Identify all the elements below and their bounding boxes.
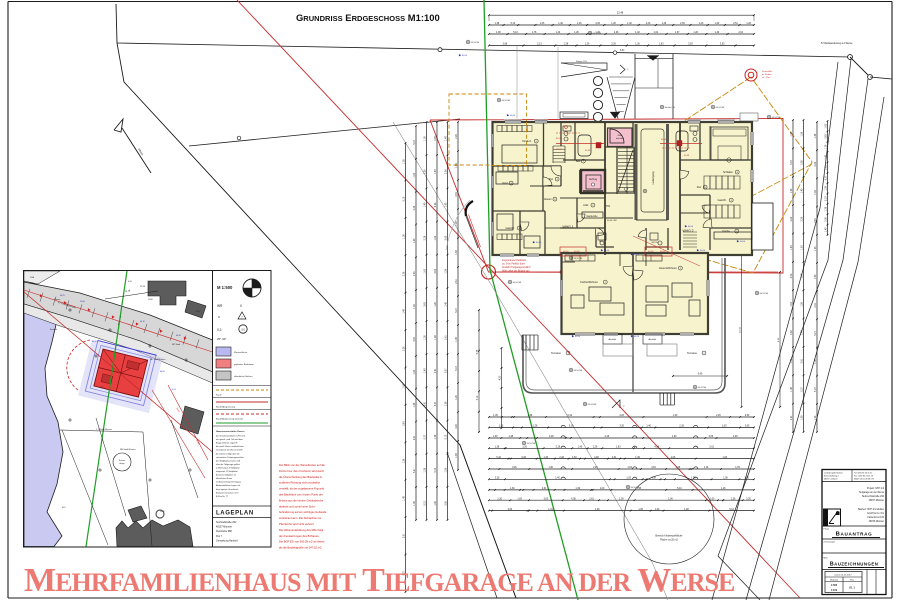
svg-text:verstellt, da der zugelassene: verstellt, da der zugelassene Fixpunkt [279,487,324,491]
svg-text:5,49: 5,49 [698,374,703,376]
svg-text:1,40: 1,40 [456,250,458,255]
svg-text:3,26: 3,26 [414,205,416,210]
svg-text:1,38: 1,38 [684,509,689,511]
svg-text:1,26: 1,26 [791,188,793,193]
svg-text:Terrasse: Terrasse [687,351,698,355]
svg-text:60,50: 60,50 [604,250,610,252]
svg-text:GL 1: GL 1 [849,586,855,590]
svg-text:1,63: 1,63 [722,426,727,428]
svg-text:3,63: 3,63 [544,498,549,500]
svg-text:1,26: 1,26 [815,246,817,251]
svg-text:öffentliche Flächen: öffentliche Flächen [234,375,253,378]
svg-text:1,38: 1,38 [826,185,828,190]
svg-text:60,50: 60,50 [575,336,581,338]
svg-text:Küche: Küche [722,229,730,233]
svg-text:2,61: 2,61 [791,415,793,420]
svg-text:neu geteilt: südl. Teil wird d: neu geteilt: südl. Teil wird dem [216,438,243,441]
svg-text:o: o [218,315,220,319]
svg-text:1,38: 1,38 [533,426,538,428]
svg-text:1,40: 1,40 [791,245,793,250]
svg-text:60,50 NN: 60,50 NN [574,258,583,260]
svg-text:5,27: 5,27 [425,434,427,439]
svg-text:60,50: 60,50 [661,139,667,141]
svg-text:Die Höhenentwicklung des MFH f: Die Höhenentwicklung des MFH folgt [279,528,323,532]
svg-text:Die BGF EG von 360,28 m2 ist: Die BGF EG von 360,28 m2 ist kleiner [279,540,325,544]
svg-text:1,39: 1,39 [635,457,640,459]
svg-text:3,63: 3,63 [745,415,750,417]
svg-text:60,50 NN: 60,50 NN [631,487,640,489]
svg-text:60,50 NN: 60,50 NN [471,42,480,44]
svg-text:1,63: 1,63 [446,202,448,207]
svg-text:3,26: 3,26 [512,467,517,469]
svg-text:Mobil: 0151 143 58 579: Mobil: 0151 143 58 579 [854,479,874,481]
svg-text:60,50: 60,50 [700,250,706,252]
svg-text:2,26: 2,26 [456,134,458,139]
svg-text:Brücke aus die hintere Gebäude: Brücke aus die hintere Gebäudeecke [279,498,324,502]
svg-text:59,80: 59,80 [80,301,85,303]
svg-text:1,40: 1,40 [446,136,448,141]
svg-text:48155 Münster: 48155 Münster [869,520,885,523]
svg-text:je Wohnung 1,5 Stellplätze: je Wohnung 1,5 Stellplätze [215,466,241,469]
svg-text:3,26: 3,26 [826,216,828,221]
svg-text:1,26: 1,26 [577,23,582,25]
svg-text:Plan: Plan [850,580,854,582]
svg-text:60,50: 60,50 [510,115,516,117]
svg-text:Bootsanl.: Bootsanl. [50,328,58,331]
svg-text:Baugrundstück zugeteilt: Baugrundstück zugeteilt [216,442,238,445]
svg-text:987 Stadt: 987 Stadt [172,343,181,346]
svg-text:5,10: 5,10 [791,160,793,165]
svg-text:2,26: 2,26 [791,273,793,278]
svg-text:60,38: 60,38 [684,155,690,157]
svg-text:den Festsetzungen des B-Planes: den Festsetzungen des B-Planes. [279,534,320,538]
svg-text:60,50 NN: 60,50 NN [513,282,522,284]
svg-text:1,26: 1,26 [425,136,427,141]
svg-text:1,26: 1,26 [662,23,667,25]
svg-text:2,26: 2,26 [646,23,651,25]
svg-text:4,38: 4,38 [651,478,656,480]
svg-text:60,50: 60,50 [92,341,97,343]
svg-text:2,13: 2,13 [537,44,542,46]
svg-text:Garderobe: Garderobe [587,215,599,218]
svg-text:1: 1 [511,183,512,185]
svg-text:1,38: 1,38 [456,337,458,342]
svg-text:3,26: 3,26 [619,415,624,417]
svg-text:1,63: 1,63 [627,467,632,469]
svg-text:5,27: 5,27 [815,330,817,335]
svg-text:1,26: 1,26 [802,131,804,136]
svg-text:2,26: 2,26 [414,271,416,276]
svg-text:60,25: 60,25 [60,295,65,297]
svg-text:Der Blick von der Wersebrücke: Der Blick von der Wersebrücke auf die [279,463,325,467]
svg-text:1,38: 1,38 [414,501,416,506]
svg-text:60,50 OKF: 60,50 OKF [607,220,617,222]
svg-text:5,27: 5,27 [456,308,458,313]
svg-text:1,38: 1,38 [528,415,533,417]
svg-text:1,26: 1,26 [611,23,616,25]
svg-text:1,39: 1,39 [619,498,624,500]
svg-text:1,38: 1,38 [495,447,500,449]
svg-text:Projekt: 6/FH mit: Projekt: 6/FH mit [867,487,884,490]
svg-text:3,26: 3,26 [802,160,804,165]
svg-text:1,38: 1,38 [509,436,514,438]
svg-text:1,06: 1,06 [723,478,728,480]
svg-text:Flur: Flur [697,185,702,189]
svg-text:4,38: 4,38 [654,447,659,449]
svg-text:2: 2 [592,205,593,207]
svg-text:1,40: 1,40 [558,23,563,25]
svg-text:5,27: 5,27 [435,401,437,406]
svg-text:1,40: 1,40 [826,227,828,232]
svg-text:4,20: 4,20 [500,375,502,380]
svg-text:Gast/Zi.: Gast/Zi. [717,198,726,202]
svg-text:2,61: 2,61 [435,368,437,373]
svg-text:60,50: 60,50 [634,254,640,256]
svg-text:4: 4 [519,228,520,230]
svg-text:1,37: 1,37 [675,32,680,34]
svg-text:Flur 7: Flur 7 [216,535,223,538]
svg-text:3,26: 3,26 [611,44,616,46]
svg-text:WC/Du: WC/Du [651,242,659,244]
svg-text:1,26: 1,26 [746,23,751,25]
svg-text:1,38: 1,38 [435,434,437,439]
svg-text:die Überschreitung des Baufeld: die Überschreitung des Baufeldes in [279,475,323,479]
svg-text:Flurstücke 988: Flurstücke 988 [216,530,232,533]
svg-text:1,38: 1,38 [791,131,793,136]
svg-text:1,40: 1,40 [404,308,406,313]
svg-text:geplanter Baukörper: geplanter Baukörper [234,363,254,366]
svg-text:1,63: 1,63 [572,457,577,459]
svg-text:1,26: 1,26 [414,172,416,177]
svg-text:1,26: 1,26 [414,369,416,374]
svg-text:2,26: 2,26 [802,216,804,221]
svg-text:2,61: 2,61 [612,457,617,459]
svg-text:1,26: 1,26 [540,23,545,25]
svg-text:1,40: 1,40 [414,238,416,243]
svg-text:GRUNDRISS ERDGESCHOSS M1:100: GRUNDRISS ERDGESCHOSS M1:100 [296,12,440,23]
svg-text:1,26: 1,26 [425,335,427,340]
svg-text:1,63: 1,63 [659,44,664,46]
svg-text:Bereich Kinderspielfläche: Bereich Kinderspielfläche [656,535,684,538]
svg-text:1,26: 1,26 [721,488,726,490]
svg-text:1,63: 1,63 [510,488,515,490]
svg-text:2,26: 2,26 [614,32,619,34]
svg-text:Landsberg Architekten: Landsberg Architekten [824,472,843,475]
svg-text:5,10: 5,10 [435,467,437,472]
svg-text:1,40: 1,40 [715,32,720,34]
svg-text:1,40: 1,40 [627,23,632,25]
svg-text:die Grundstücksfläche 1297 wir: die Grundstücksfläche 1297 wird [216,435,245,438]
svg-text:insgesamt 12 Stellplätze: insgesamt 12 Stellplätze [216,470,239,473]
svg-text:öffentlichen Raum: öffentlichen Raum [216,477,232,480]
svg-text:0,3: 0,3 [217,328,222,332]
svg-text:Zeichnungen: Zeichnungen [824,542,836,544]
svg-text:Kranstellfl.: Kranstellfl. [762,70,773,73]
svg-text:WHG 1: WHG 1 [562,225,573,229]
svg-text:2,61: 2,61 [826,165,828,170]
svg-text:WR: WR [217,304,223,308]
svg-text:Pfarrkirche wird nicht verletz: Pfarrkirche wird nicht verletzt. [279,522,314,526]
svg-text:1: 1 [567,353,568,355]
svg-text:6: 6 [554,199,555,201]
svg-text:1,26: 1,26 [456,395,458,400]
svg-text:5,10: 5,10 [677,488,682,490]
svg-text:Taubrechtsstraße 292: Taubrechtsstraße 292 [862,495,885,498]
svg-text:1,26: 1,26 [574,32,579,34]
svg-text:1,63: 1,63 [517,498,522,500]
svg-text:60,38: 60,38 [660,251,666,253]
svg-text:1,00: 1,00 [493,436,498,438]
svg-text:2,26: 2,26 [497,498,502,500]
svg-text:südlicher Richtung nicht zusät: südlicher Richtung nicht zusätzlich [279,481,321,485]
svg-text:3,26: 3,26 [404,271,406,276]
svg-text:dem eigenen Grundstück: dem eigenen Grundstück [216,488,238,491]
svg-text:2,61: 2,61 [456,279,458,284]
svg-text:1,26: 1,26 [456,221,458,226]
svg-text:15,34: 15,34 [740,326,742,332]
svg-text:60,50 NN: 60,50 NN [527,443,536,445]
svg-text:5,10: 5,10 [815,387,817,392]
svg-text:5,27: 5,27 [414,468,416,473]
svg-text:1,38: 1,38 [446,401,448,406]
svg-text:Müll-: Müll- [618,135,623,137]
svg-text:5,10: 5,10 [511,23,516,25]
svg-text:1,40: 1,40 [543,457,548,459]
svg-text:5,10: 5,10 [729,509,734,511]
svg-text:60,50: 60,50 [740,241,746,243]
svg-text:1,26: 1,26 [404,234,406,239]
svg-text:9: 9 [705,187,706,189]
svg-text:2,61: 2,61 [425,401,427,406]
svg-text:Werse-: Werse- [54,299,61,301]
svg-text:Abstellpl.: Abstellpl. [648,338,657,341]
svg-text:980 Stadt Münster: 980 Stadt Münster [120,448,136,451]
svg-text:60,10: 60,10 [140,321,145,323]
svg-text:1,26: 1,26 [826,206,828,211]
svg-text:Baufeldbegrenzung: Baufeldbegrenzung [216,406,236,409]
svg-text:1: 1 [605,282,606,284]
svg-text:3,63: 3,63 [709,436,714,438]
svg-text:2,26: 2,26 [446,169,448,174]
svg-text:Maßstab: Maßstab [830,579,839,582]
svg-text:behinderung auf ein wichtiges: behinderung auf ein wichtiges Gebäude [279,510,327,514]
svg-text:60,50 NN: 60,50 NN [716,107,725,109]
svg-text:2,63: 2,63 [680,23,685,25]
svg-text:B-Plan Nr. 77: B-Plan Nr. 77 [216,496,229,498]
svg-text:5,10: 5,10 [404,196,406,201]
svg-text:1,26: 1,26 [635,44,640,46]
svg-text:3,63: 3,63 [456,192,458,197]
svg-text:2,26: 2,26 [404,346,406,351]
svg-text:3,26: 3,26 [556,447,561,449]
svg-text:Ausfahrt Tiefgaragenzufahrt: Ausfahrt Tiefgaragenzufahrt [502,266,531,269]
svg-text:4,38: 4,38 [571,498,576,500]
svg-text:5,10: 5,10 [826,196,828,201]
svg-text:1,38: 1,38 [496,32,501,34]
svg-text:5,10: 5,10 [414,139,416,144]
svg-text:2,61: 2,61 [404,533,406,538]
svg-text:1,26: 1,26 [435,500,437,505]
svg-text:2,26: 2,26 [435,202,437,207]
svg-text:5,27: 5,27 [826,175,828,180]
svg-text:1,40: 1,40 [646,426,651,428]
svg-text:5,27: 5,27 [446,368,448,373]
svg-text:vorhandene Tiefgaragenzufahrt: vorhandene Tiefgaragenzufahrt [216,456,244,459]
svg-text:1,38: 1,38 [495,23,500,25]
svg-text:Tiefgarage an der Werse: Tiefgarage an der Werse [859,491,885,494]
svg-text:Aufzug: Aufzug [589,177,598,181]
svg-text:LAGEPLAN: LAGEPLAN [216,511,254,517]
svg-text:2,26: 2,26 [605,436,610,438]
svg-text:1,63: 1,63 [616,447,621,449]
svg-text:3: 3 [731,200,732,202]
svg-text:2,61: 2,61 [815,302,817,307]
svg-text:1,26: 1,26 [446,268,448,273]
svg-text:1,26: 1,26 [585,44,590,46]
svg-text:2,61: 2,61 [589,498,594,500]
svg-text:60,50 NN: 60,50 NN [698,387,707,389]
svg-text:22,90: 22,90 [140,286,146,288]
svg-text:1,39: 1,39 [576,488,581,490]
svg-text:1,26: 1,26 [802,301,804,306]
svg-text:Ankl.: Ankl. [583,203,589,207]
svg-text:2,26: 2,26 [815,161,817,166]
svg-text:2,26: 2,26 [679,426,684,428]
svg-text:5,10: 5,10 [446,434,448,439]
svg-text:1,40: 1,40 [556,32,561,34]
svg-text:5,10: 5,10 [513,32,518,34]
svg-text:57 Radwanderweg a.d.Werse: 57 Radwanderweg a.d.Werse [821,42,853,45]
svg-text:2,61: 2,61 [709,447,714,449]
svg-text:5,35: 5,35 [477,349,479,354]
svg-text:1,40: 1,40 [673,415,678,417]
svg-text:1,38: 1,38 [802,415,804,420]
svg-text:1,76: 1,76 [532,32,537,34]
svg-text:7: 7 [583,161,584,163]
svg-text:Einfahrt TG: Einfahrt TG [665,106,676,109]
svg-text:2,26: 2,26 [559,457,564,459]
svg-text:1,40: 1,40 [635,32,640,34]
svg-text:1,63: 1,63 [802,245,804,250]
svg-text:1,63: 1,63 [672,436,677,438]
svg-text:48157 Lembeck: 48157 Lembeck [824,479,838,481]
svg-text:ZUA: ZUA [30,276,35,279]
svg-text:5,10: 5,10 [425,500,427,505]
svg-text:1,06: 1,06 [668,498,673,500]
svg-text:8: 8 [737,172,738,174]
svg-text:Rampe 15%: Rampe 15% [576,61,587,63]
svg-text:60,50 NN: 60,50 NN [772,117,781,119]
svg-text:Kante: Kante [216,394,222,397]
svg-text:1,38: 1,38 [815,359,817,364]
svg-text:1,63: 1,63 [414,304,416,309]
svg-text:2: 2 [736,231,737,233]
svg-text:60,38: 60,38 [574,251,580,253]
svg-text:3,26: 3,26 [435,136,437,141]
svg-text:1,40: 1,40 [425,368,427,373]
svg-text:Fläche ca 35 m2: Fläche ca 35 m2 [660,539,678,542]
svg-text:3,26: 3,26 [791,216,793,221]
svg-text:Terrasse: Terrasse [551,351,562,355]
svg-text:4,38: 4,38 [676,467,681,469]
svg-text:Brunnen: Brunnen [119,460,125,462]
svg-text:60,38: 60,38 [585,150,591,152]
svg-text:3,26: 3,26 [521,457,526,459]
svg-text:60,50: 60,50 [648,251,654,253]
svg-text:Laubengang: Laubengang [652,171,655,185]
svg-text:Wasserfläche: Wasserfläche [234,351,248,354]
svg-text:3,26: 3,26 [595,23,600,25]
svg-text:3,63: 3,63 [745,426,750,428]
svg-text:60,50 NN: 60,50 NN [574,370,583,372]
svg-text:ca. 21m: ca. 21m [762,77,770,79]
svg-text:5,10: 5,10 [496,457,501,459]
svg-text:Phase: Phase [824,529,831,531]
svg-text:Essen: Essen [544,197,552,201]
svg-text:3,63: 3,63 [688,44,693,46]
svg-text:3,63: 3,63 [446,235,448,240]
svg-text:Bad: Bad [576,159,581,163]
svg-text:1,00: 1,00 [723,457,728,459]
svg-text:des Baufeldes vom letzten Punk: des Baufeldes vom letzten Punkt der [279,493,323,497]
svg-text:60,50: 60,50 [462,55,468,57]
svg-text:1,01: 1,01 [548,509,553,511]
svg-text:1,40: 1,40 [435,169,437,174]
svg-text:1,40: 1,40 [456,453,458,458]
svg-text:1,63: 1,63 [456,163,458,168]
svg-text:1,00: 1,00 [600,488,605,490]
svg-text:3,10: 3,10 [477,395,479,400]
svg-text:abdeckt und somit keine Sicht-: abdeckt und somit keine Sicht- [279,504,316,508]
svg-text:als die Baufeldgröße mit 547,5: als die Baufeldgröße mit 547,52 m2. [279,546,322,550]
svg-text:OK RF: OK RF [556,149,563,151]
svg-text:behälter: behälter [616,137,624,140]
svg-text:1,26: 1,26 [699,23,704,25]
svg-text:Zugeordneter Parkplatz: Zugeordneter Parkplatz [502,259,527,262]
svg-text:60,50: 60,50 [688,226,694,228]
svg-text:1,40: 1,40 [815,133,817,138]
svg-text:Essen/Wohnen: Essen/Wohnen [659,266,677,270]
svg-text:Fax: 0256 85 23 41 13: Fax: 0256 85 23 41 13 [854,476,873,478]
svg-text:1,63: 1,63 [826,123,828,128]
svg-text:1,06: 1,06 [671,457,676,459]
svg-text:TH1: TH1 [606,205,611,208]
svg-text:3,26: 3,26 [619,426,624,428]
svg-text:60,50: 60,50 [556,138,562,140]
svg-text:60,50 NN: 60,50 NN [593,33,602,35]
svg-text:Besucherstellplätze im: Besucherstellplätze im [216,474,236,477]
svg-text:WHG 2: WHG 2 [682,229,693,233]
svg-text:3,26: 3,26 [495,478,500,480]
svg-text:1:500: 1:500 [831,584,838,587]
svg-text:Kinderz.: Kinderz. [522,139,532,143]
svg-text:3,63: 3,63 [404,421,406,426]
svg-text:60,50 NN: 60,50 NN [588,404,597,406]
svg-text:Gast/Zi.: Gast/Zi. [505,226,514,230]
svg-text:Abstellpl.: Abstellpl. [608,338,617,341]
svg-text:Eichendorffweg 4: Eichendorffweg 4 [824,475,839,478]
svg-text:1,01: 1,01 [654,32,659,34]
svg-text:Bauherr: BVH Immobilien: Bauherr: BVH Immobilien [858,508,885,511]
svg-text:Abstandsflächen liegen auf: Abstandsflächen liegen auf [216,484,240,487]
svg-text:1,26: 1,26 [446,467,448,472]
svg-text:5,10: 5,10 [567,415,572,417]
svg-text:48157 Münster: 48157 Münster [216,526,232,529]
svg-text:Flur: Flur [549,177,554,181]
svg-text:1,40: 1,40 [435,335,437,340]
svg-text:3,26: 3,26 [549,436,554,438]
svg-text:2: 2 [680,268,681,270]
